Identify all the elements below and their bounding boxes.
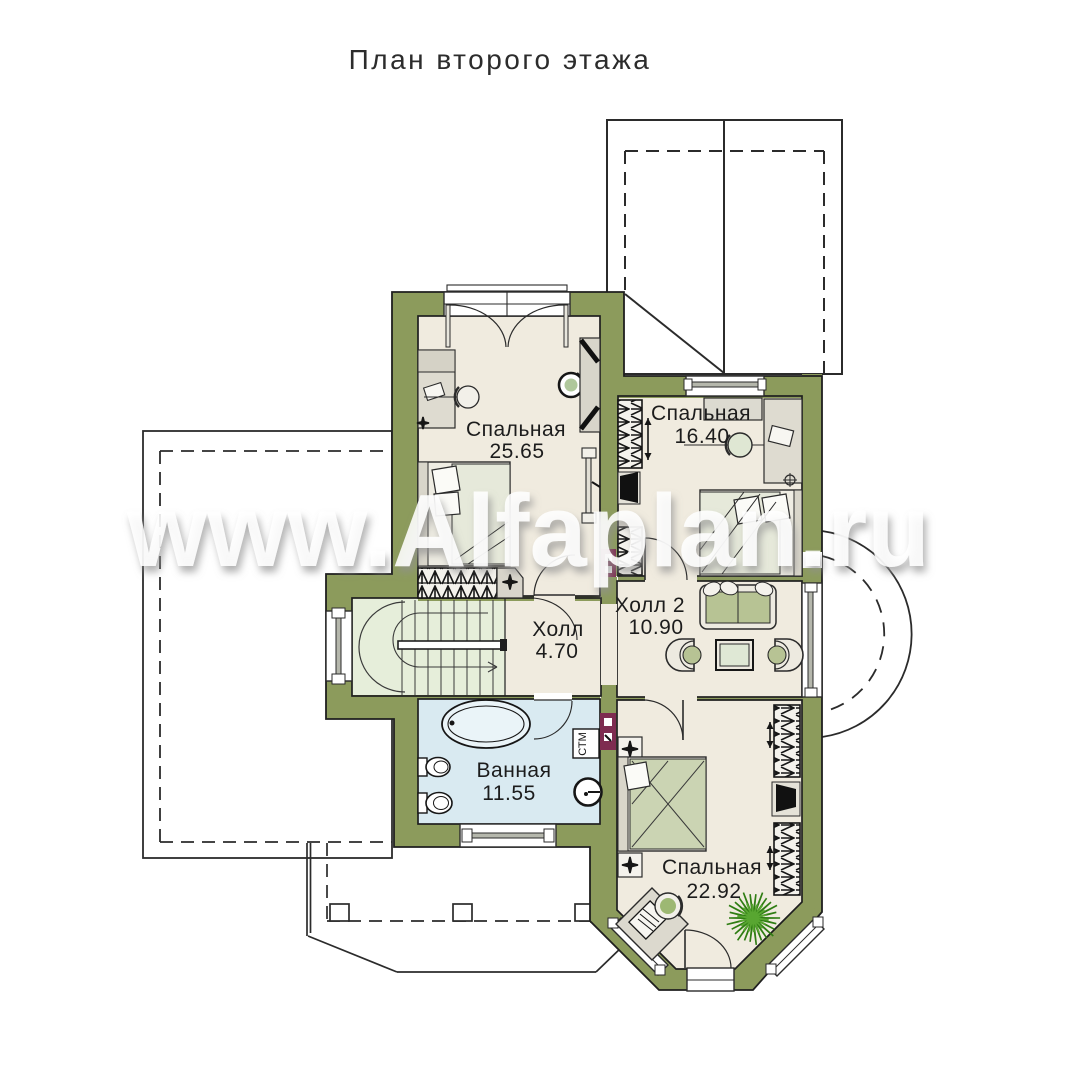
svg-text:16.40: 16.40 bbox=[674, 425, 729, 448]
svg-text:25.65: 25.65 bbox=[489, 440, 544, 463]
svg-text:4.70: 4.70 bbox=[536, 640, 579, 663]
svg-text:Холл 2: Холл 2 bbox=[615, 594, 685, 617]
svg-text:Холл: Холл bbox=[532, 618, 584, 641]
svg-text:Спальная: Спальная bbox=[662, 856, 762, 879]
svg-text:www.Alfaplan.ru: www.Alfaplan.ru bbox=[126, 473, 930, 588]
svg-text:Ванная: Ванная bbox=[477, 759, 552, 782]
svg-text:План второго этажа: План второго этажа bbox=[349, 44, 652, 75]
svg-text:10.90: 10.90 bbox=[628, 616, 683, 639]
svg-text:11.55: 11.55 bbox=[482, 782, 536, 805]
svg-text:Спальная: Спальная bbox=[651, 402, 751, 425]
svg-text:22.92: 22.92 bbox=[686, 880, 741, 903]
svg-text:СТМ: СТМ bbox=[577, 732, 589, 755]
svg-text:Спальная: Спальная bbox=[466, 418, 566, 441]
